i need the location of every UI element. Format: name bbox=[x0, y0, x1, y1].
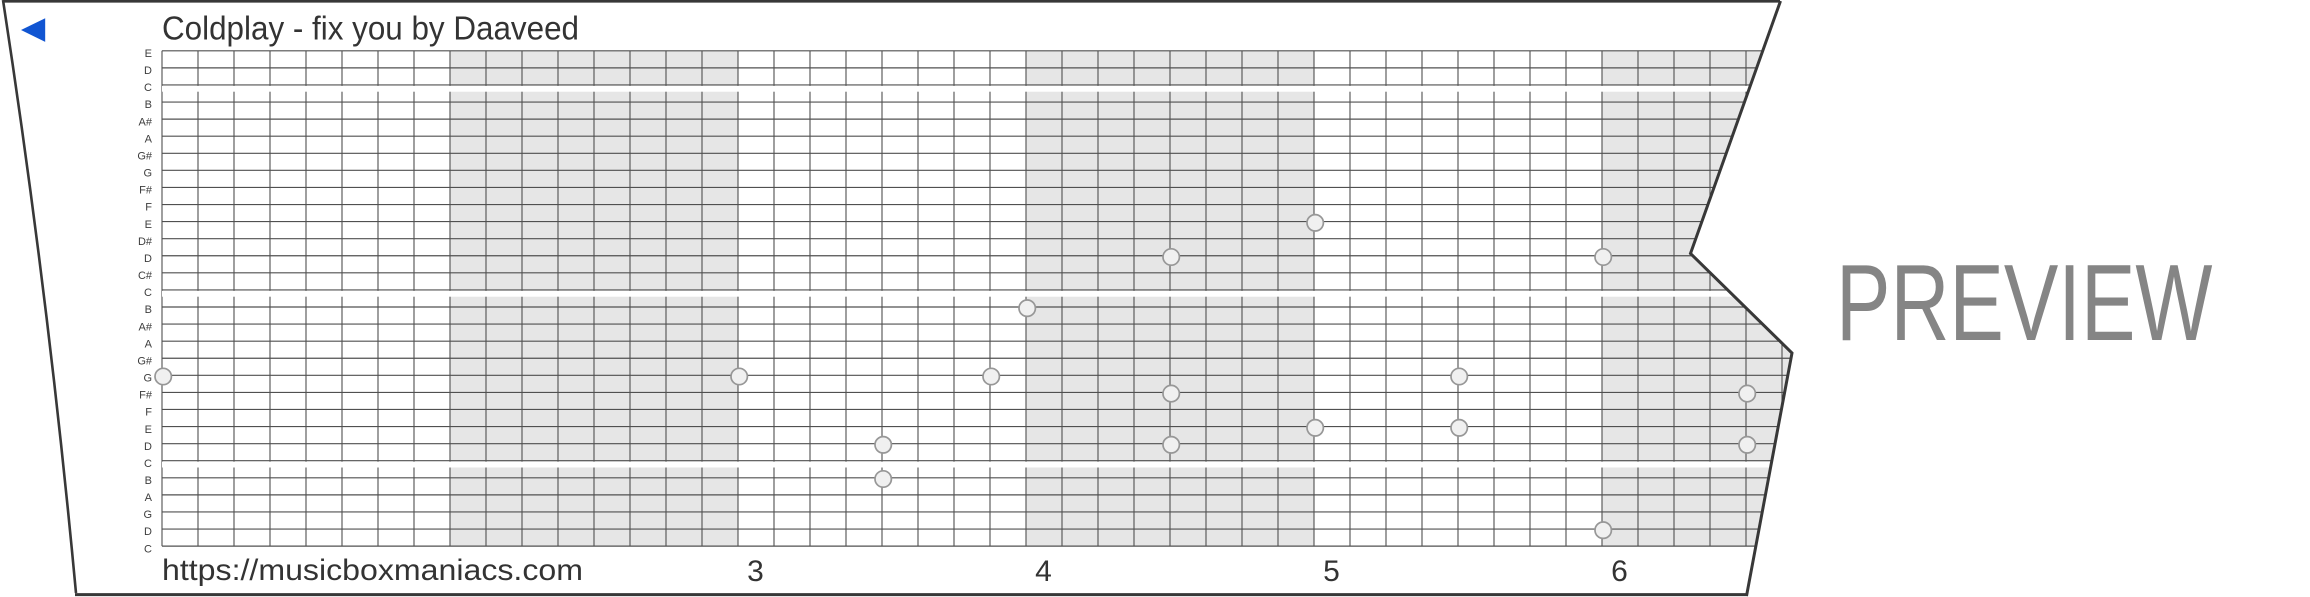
svg-text:F: F bbox=[145, 407, 152, 419]
svg-text:A: A bbox=[145, 133, 153, 145]
svg-text:C: C bbox=[144, 543, 152, 555]
svg-text:D: D bbox=[144, 253, 152, 265]
svg-text:G#: G# bbox=[137, 355, 153, 367]
svg-text:C: C bbox=[144, 287, 152, 299]
svg-text:A#: A# bbox=[139, 321, 153, 333]
svg-text:D: D bbox=[144, 65, 152, 77]
svg-text:E: E bbox=[145, 424, 152, 436]
svg-text:E: E bbox=[145, 219, 152, 231]
svg-text:A: A bbox=[145, 492, 153, 504]
svg-text:6: 6 bbox=[1611, 555, 1628, 588]
svg-text:D: D bbox=[144, 441, 152, 453]
svg-text:C: C bbox=[144, 458, 152, 470]
svg-text:PREVIEW: PREVIEW bbox=[1836, 243, 2213, 364]
svg-text:G: G bbox=[143, 168, 152, 180]
svg-text:3: 3 bbox=[747, 555, 764, 588]
svg-text:A: A bbox=[145, 338, 153, 350]
svg-text:E: E bbox=[145, 48, 152, 60]
svg-text:5: 5 bbox=[1323, 555, 1340, 588]
svg-text:D: D bbox=[144, 526, 152, 538]
svg-text:B: B bbox=[145, 304, 152, 316]
svg-text:F#: F# bbox=[139, 185, 153, 197]
svg-text:4: 4 bbox=[1035, 555, 1052, 588]
svg-text:G: G bbox=[143, 373, 152, 385]
svg-text:A#: A# bbox=[139, 116, 153, 128]
svg-text:F#: F# bbox=[139, 390, 153, 402]
svg-text:B: B bbox=[145, 475, 152, 487]
svg-text:C#: C# bbox=[138, 270, 153, 282]
svg-text:F: F bbox=[145, 202, 152, 214]
svg-text:C: C bbox=[144, 82, 152, 94]
svg-text:Coldplay - fix you by Daaveed: Coldplay - fix you by Daaveed bbox=[162, 9, 579, 46]
svg-text:G#: G# bbox=[137, 151, 153, 163]
svg-text:G: G bbox=[143, 509, 152, 521]
svg-text:https://musicboxmaniacs.com: https://musicboxmaniacs.com bbox=[162, 554, 583, 587]
svg-text:B: B bbox=[145, 99, 152, 111]
svg-text:D#: D# bbox=[138, 236, 153, 248]
